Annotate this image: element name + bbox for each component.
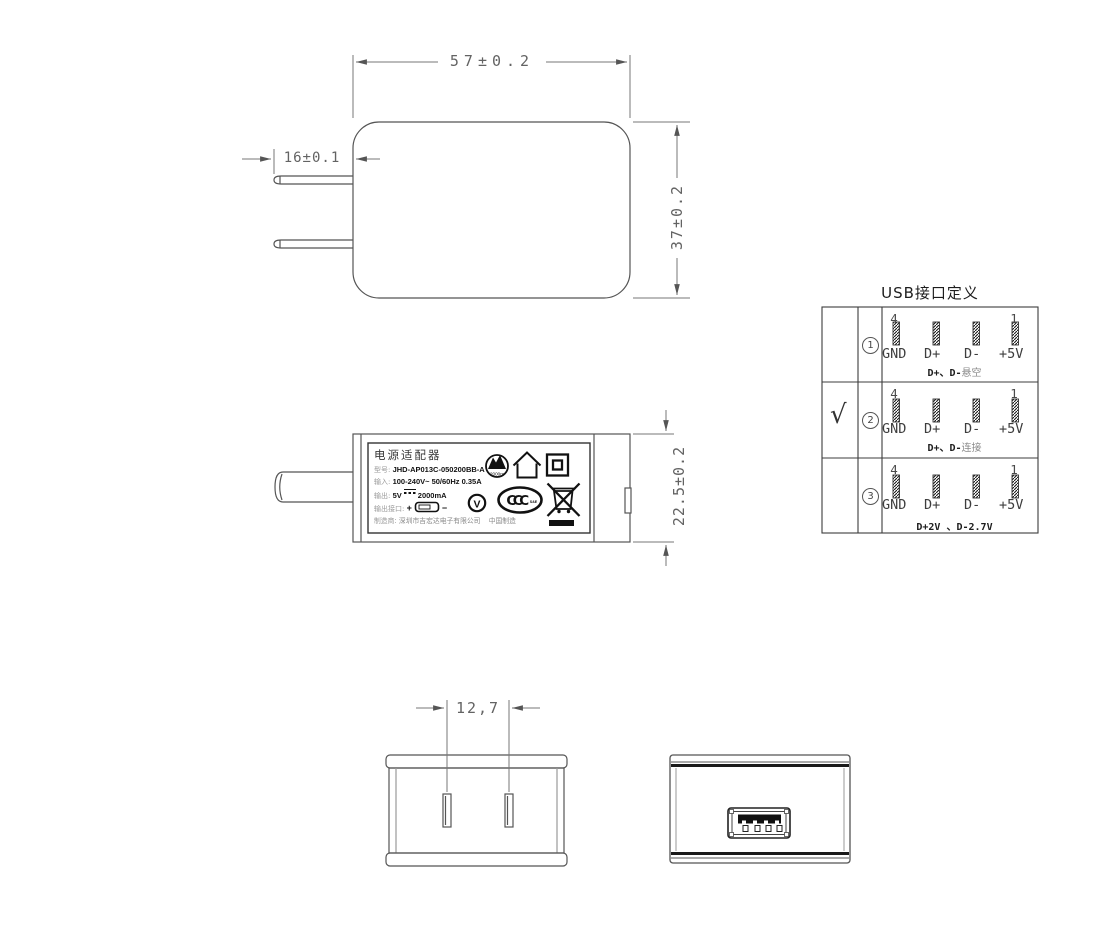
label-title: 电源适配器 [374, 447, 442, 463]
label-row-port: 输出接口: +− [374, 501, 447, 514]
row3-note-bold: D+2V 、D-2.7V [916, 522, 992, 533]
usb-table-row-3: 3 4 1 GND D+ D- +5V D+2V 、D-2.7V [822, 458, 1038, 534]
output-voltage: 5V [393, 491, 402, 500]
row2-note-bold: D+、D- [927, 443, 961, 454]
dim-text-width-57: 57±0.2 [437, 52, 547, 70]
label-row-input: 输入: 100-240V~ 50/60Hz 0.35A [374, 477, 482, 487]
dim-text-height-37: 37±0.2 [668, 157, 686, 277]
label-row-maker: 制造商: 深圳市吉宏达电子有限公司 中国制造 [374, 515, 516, 525]
row2-note: D+、D-连接 [882, 439, 1027, 454]
label-row-output: 输出: 5V2000mA [374, 489, 447, 501]
pin-label-5v: +5V [999, 497, 1023, 513]
front-view-outline [386, 755, 567, 866]
maker-key: 制造商: [374, 517, 397, 525]
pin-label-5v: +5V [999, 421, 1023, 437]
pin-number-1: 1 [1006, 462, 1022, 477]
made-in: 中国制造 [489, 517, 516, 525]
row2-selected-mark: √ [830, 400, 847, 430]
row1-number-badge: 1 [862, 337, 879, 354]
maker-company: 深圳市吉宏达电子有限公司 [399, 517, 481, 525]
input-value: 100-240V~ 50/60Hz 0.35A [393, 477, 482, 486]
adapter-body-top [353, 122, 630, 298]
technical-drawing-sheet: 2000m V CCC S&E [0, 0, 1100, 925]
dim-text-prong-16: 16±0.1 [272, 150, 352, 166]
usb-table-row-1: 1 4 1 GND D+ D- +5V D+、D-悬空 [822, 307, 1038, 383]
pin-label-dplus: D+ [924, 421, 940, 437]
port-minus-sign: − [442, 503, 447, 513]
pin-number-4: 4 [886, 462, 902, 477]
usb-connector-icon [414, 501, 440, 513]
input-key: 输入: [374, 478, 390, 486]
plug-prong-side [275, 472, 353, 502]
label-row-model: 型号: JHD-AP013C-050200BB-A [374, 465, 485, 475]
row1-note: D+、D-悬空 [882, 364, 1027, 379]
pin-label-gnd: GND [882, 497, 906, 513]
pin-label-dplus: D+ [924, 497, 940, 513]
pin-label-dplus: D+ [924, 346, 940, 362]
usb-port-edge [625, 488, 631, 513]
usb-table-row-2: √ 2 4 1 GND D+ D- +5V D+、D-连接 [822, 382, 1038, 458]
prong-slot-right [505, 794, 513, 827]
dc-symbol-icon [404, 489, 416, 497]
output-current: 2000mA [418, 491, 447, 500]
port-plus-sign: + [407, 503, 412, 513]
usb-a-port-icon [728, 808, 790, 838]
pin-label-dminus: D- [964, 346, 980, 362]
row3-note: D+2V 、D-2.7V [882, 518, 1027, 533]
pin-number-1: 1 [1006, 386, 1022, 401]
row1-note-plain: 悬空 [962, 368, 982, 379]
pin-number-1: 1 [1006, 311, 1022, 326]
dimension-22-5 [633, 410, 674, 566]
model-key: 型号: [374, 466, 390, 474]
product-label: 电源适配器 型号: JHD-AP013C-050200BB-A 输入: 100-… [368, 443, 590, 533]
pin-label-gnd: GND [882, 421, 906, 437]
model-value: JHD-AP013C-050200BB-A [393, 465, 485, 474]
row1-note-bold: D+、D- [927, 368, 961, 379]
port-key: 输出接口: [374, 505, 404, 513]
pin-label-dminus: D- [964, 497, 980, 513]
pin-label-dminus: D- [964, 421, 980, 437]
prong-slot-left [443, 794, 451, 827]
pin-label-5v: +5V [999, 346, 1023, 362]
row3-number-badge: 3 [862, 488, 879, 505]
row2-number-badge: 2 [862, 412, 879, 429]
output-key: 输出: [374, 492, 390, 500]
dim-text-pin-pitch-12-7: 12,7 [448, 699, 508, 717]
plug-prong-top [274, 176, 353, 184]
top-view-outline [274, 122, 630, 298]
pin-number-4: 4 [886, 386, 902, 401]
pin-number-4: 4 [886, 311, 902, 326]
row2-note-plain: 连接 [962, 443, 982, 454]
pin-label-gnd: GND [882, 346, 906, 362]
usb-table-title: USB接口定义 [855, 282, 1005, 303]
dim-text-side-height-22-5: 22.5±0.2 [670, 426, 688, 546]
plug-prong-bottom [274, 240, 353, 248]
